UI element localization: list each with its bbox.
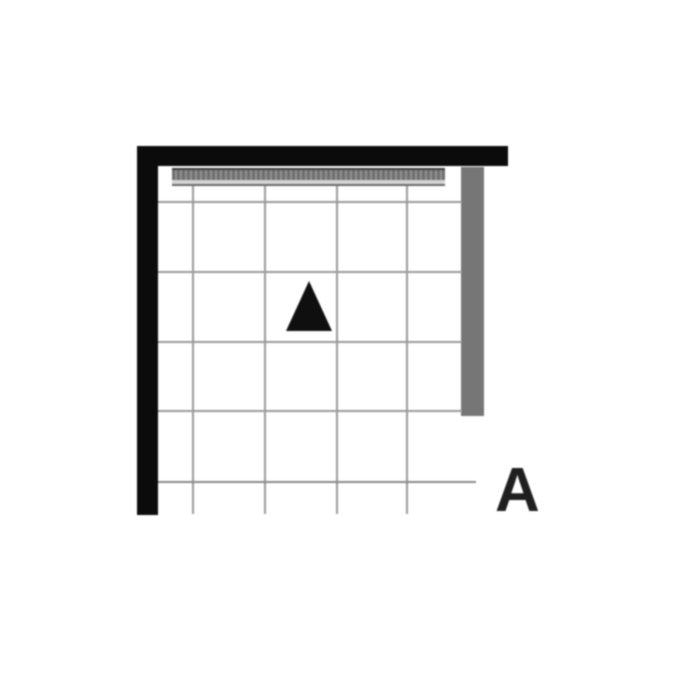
grid-line-vertical [336, 186, 338, 514]
left-wall [137, 146, 158, 515]
hatch-stripes [172, 170, 445, 180]
grid-line-horizontal [158, 271, 462, 273]
floor-plan-diagram: A [0, 0, 685, 685]
position-marker-triangle [286, 281, 332, 331]
hatch-light-line [172, 180, 445, 184]
grid-line-vertical [264, 186, 266, 514]
hatched-strip [172, 168, 445, 186]
right-gray-wall [461, 167, 484, 416]
grid-line-horizontal-bottom [158, 481, 476, 483]
top-wall [137, 146, 508, 166]
grid-line-vertical [406, 186, 408, 514]
grid-line-horizontal [158, 201, 462, 203]
grid-line-horizontal [158, 341, 462, 343]
grid-line-horizontal [158, 410, 462, 412]
corner-label: A [495, 460, 540, 522]
grid-line-vertical [192, 186, 194, 514]
